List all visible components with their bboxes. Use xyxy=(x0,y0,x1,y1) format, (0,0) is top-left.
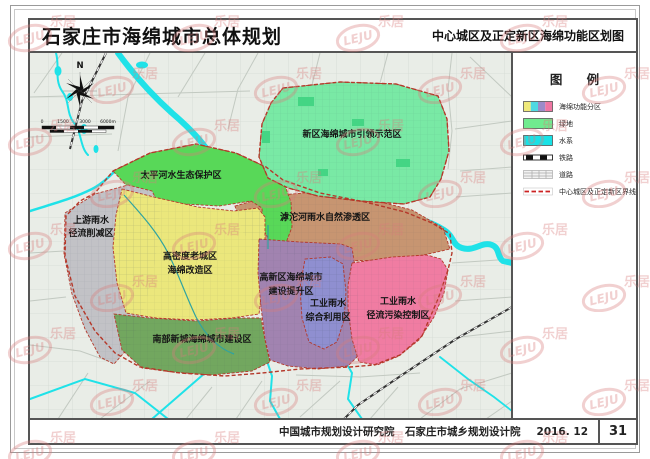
sheet-title: 石家庄市海绵城市总体规划 xyxy=(42,22,282,49)
legend-label: 水系 xyxy=(559,136,573,146)
legend-label: 海绵功能分区 xyxy=(559,102,601,112)
legend-label: 绿地 xyxy=(559,119,573,129)
legend-label: 道路 xyxy=(559,170,573,180)
region-label: 南部新城海绵城市建设区 xyxy=(152,333,251,345)
scale-tick: 1500 xyxy=(57,119,69,125)
region-label: 上游雨水 xyxy=(73,214,110,226)
region-label: 新区海绵城市引领示范区 xyxy=(302,128,401,140)
region-label: 太平河水生态保护区 xyxy=(139,169,221,181)
greenspace-swatch xyxy=(523,118,553,129)
region-label: 工业雨水 xyxy=(310,297,347,309)
boundary-swatch xyxy=(523,186,553,197)
region-label: 综合利用区 xyxy=(305,311,350,323)
sheet-footer: 中国城市规划设计研究院 石家庄市城乡规划设计院 2016. 12 31 xyxy=(30,418,636,443)
legend-item-water: 水系 xyxy=(523,135,636,146)
north-label: N xyxy=(76,61,83,71)
sheet-date: 2016. 12 xyxy=(537,426,588,438)
region-label: 径流削减区 xyxy=(68,227,113,239)
legend-item-road: 道路 xyxy=(523,169,636,180)
sponge-zones-swatch xyxy=(523,101,553,112)
legend-item-railway: 铁路 xyxy=(523,152,636,163)
sheet-header: 石家庄市海绵城市总体规划 中心城区及正定新区海绵功能区划图 xyxy=(30,20,636,53)
railway-swatch xyxy=(523,152,553,163)
region-label: 建设提升区 xyxy=(268,285,313,297)
region-label: 海绵改造区 xyxy=(167,264,212,276)
map-canvas: 新区海绵城市引领示范区 太平河水生态保护区 上游雨水 径流削减区 高密度老城区 … xyxy=(30,53,511,418)
page-number: 31 xyxy=(598,420,636,443)
scale-tick: 0 xyxy=(41,119,44,125)
map-sheet: 石家庄市海绵城市总体规划 中心城区及正定新区海绵功能区划图 xyxy=(28,18,638,445)
sheet-subtitle: 中心城区及正定新区海绵功能区划图 xyxy=(432,27,624,44)
legend-item-sponge-zones: 海绵功能分区 xyxy=(523,101,636,112)
road-swatch xyxy=(523,169,553,180)
legend-panel: 图 例 海绵功能分区 绿地 xyxy=(511,53,636,418)
region-label: 径流污染控制区 xyxy=(366,309,429,321)
legend-item-greenspace: 绿地 xyxy=(523,118,636,129)
scale-tick: 6000m xyxy=(100,119,116,125)
scale-tick: 3000 xyxy=(79,119,91,125)
legend-label: 中心城区及正定新区界线 xyxy=(559,187,636,197)
region-label: 高密度老城区 xyxy=(163,250,217,262)
legend-item-boundary: 中心城区及正定新区界线 xyxy=(523,186,636,197)
legend-label: 铁路 xyxy=(559,153,573,163)
region-label: 滹沱河雨水自然渗透区 xyxy=(280,211,370,223)
water-swatch xyxy=(523,135,553,146)
design-institutes: 中国城市规划设计研究院 石家庄市城乡规划设计院 xyxy=(279,424,521,439)
region-label: 工业雨水 xyxy=(380,295,417,307)
legend-title: 图 例 xyxy=(513,69,636,88)
region-label: 高新区海绵城市 xyxy=(259,271,322,283)
